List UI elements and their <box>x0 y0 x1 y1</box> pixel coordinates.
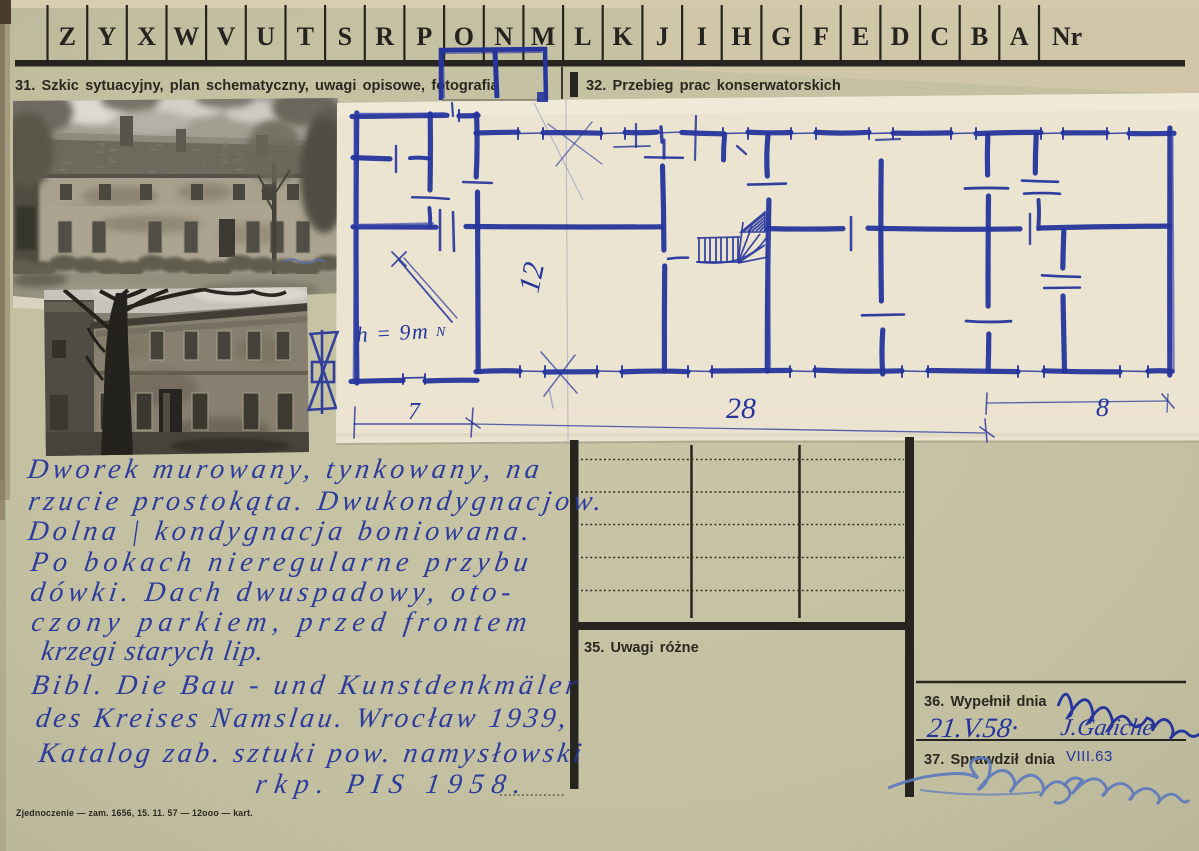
svg-text:S: S <box>338 22 352 51</box>
svg-text:L: L <box>574 22 591 51</box>
svg-text:C: C <box>930 22 949 51</box>
svg-text:Nr: Nr <box>1052 22 1082 51</box>
svg-text:32. Przebieg prac konserwators: 32. Przebieg prac konserwatorskich <box>586 78 841 94</box>
svg-text:E: E <box>852 22 869 51</box>
svg-text:Y: Y <box>98 22 117 51</box>
svg-text:J: J <box>656 22 669 51</box>
svg-text:T: T <box>297 22 314 51</box>
svg-text:Zjednoczenie — zam. 1656, 1: Zjednoczenie — zam. 1656, 15. 11. 57 — 1… <box>16 808 253 818</box>
svg-text:21.V.58·: 21.V.58· <box>925 713 1020 744</box>
svg-text:U: U <box>256 22 275 51</box>
svg-text:N: N <box>494 22 513 51</box>
svg-text:Z: Z <box>59 22 76 51</box>
svg-text:dówki. Dach dwuspadowy, oto: dówki. Dach dwuspadowy, oto- <box>29 577 513 608</box>
svg-text:K: K <box>612 22 633 51</box>
svg-text:M: M <box>531 22 556 51</box>
svg-text:D: D <box>891 22 910 51</box>
svg-text:N: N <box>435 325 446 340</box>
svg-text:V: V <box>217 22 236 51</box>
svg-text:P: P <box>416 22 432 51</box>
svg-text:krzegi starych lip.: krzegi starych lip. <box>39 636 265 667</box>
svg-text:7: 7 <box>408 399 421 425</box>
svg-text:8: 8 <box>1096 393 1109 422</box>
svg-text:28: 28 <box>726 392 756 425</box>
svg-text:36. Wypełnił dnia: 36. Wypełnił dnia <box>924 694 1047 710</box>
svg-text:J.Galiche: J.Galiche <box>1059 715 1156 741</box>
svg-text:R: R <box>375 22 394 51</box>
svg-text:A: A <box>1010 22 1029 51</box>
svg-text:G: G <box>771 22 791 51</box>
svg-text:F: F <box>813 22 829 51</box>
svg-text:H: H <box>731 22 751 51</box>
svg-text:VIII.63: VIII.63 <box>1066 748 1113 765</box>
svg-text:31. Szkic sytuacyjny, plan sch: 31. Szkic sytuacyjny, plan schematyczny,… <box>15 78 500 94</box>
svg-text:W: W <box>173 22 199 51</box>
svg-text:h = 9m: h = 9m <box>356 318 430 347</box>
svg-text:B: B <box>971 22 988 51</box>
svg-text:35. Uwagi różne: 35. Uwagi różne <box>584 640 699 656</box>
svg-text:I: I <box>697 22 707 51</box>
svg-text:X: X <box>137 22 156 51</box>
svg-text:O: O <box>454 22 474 51</box>
